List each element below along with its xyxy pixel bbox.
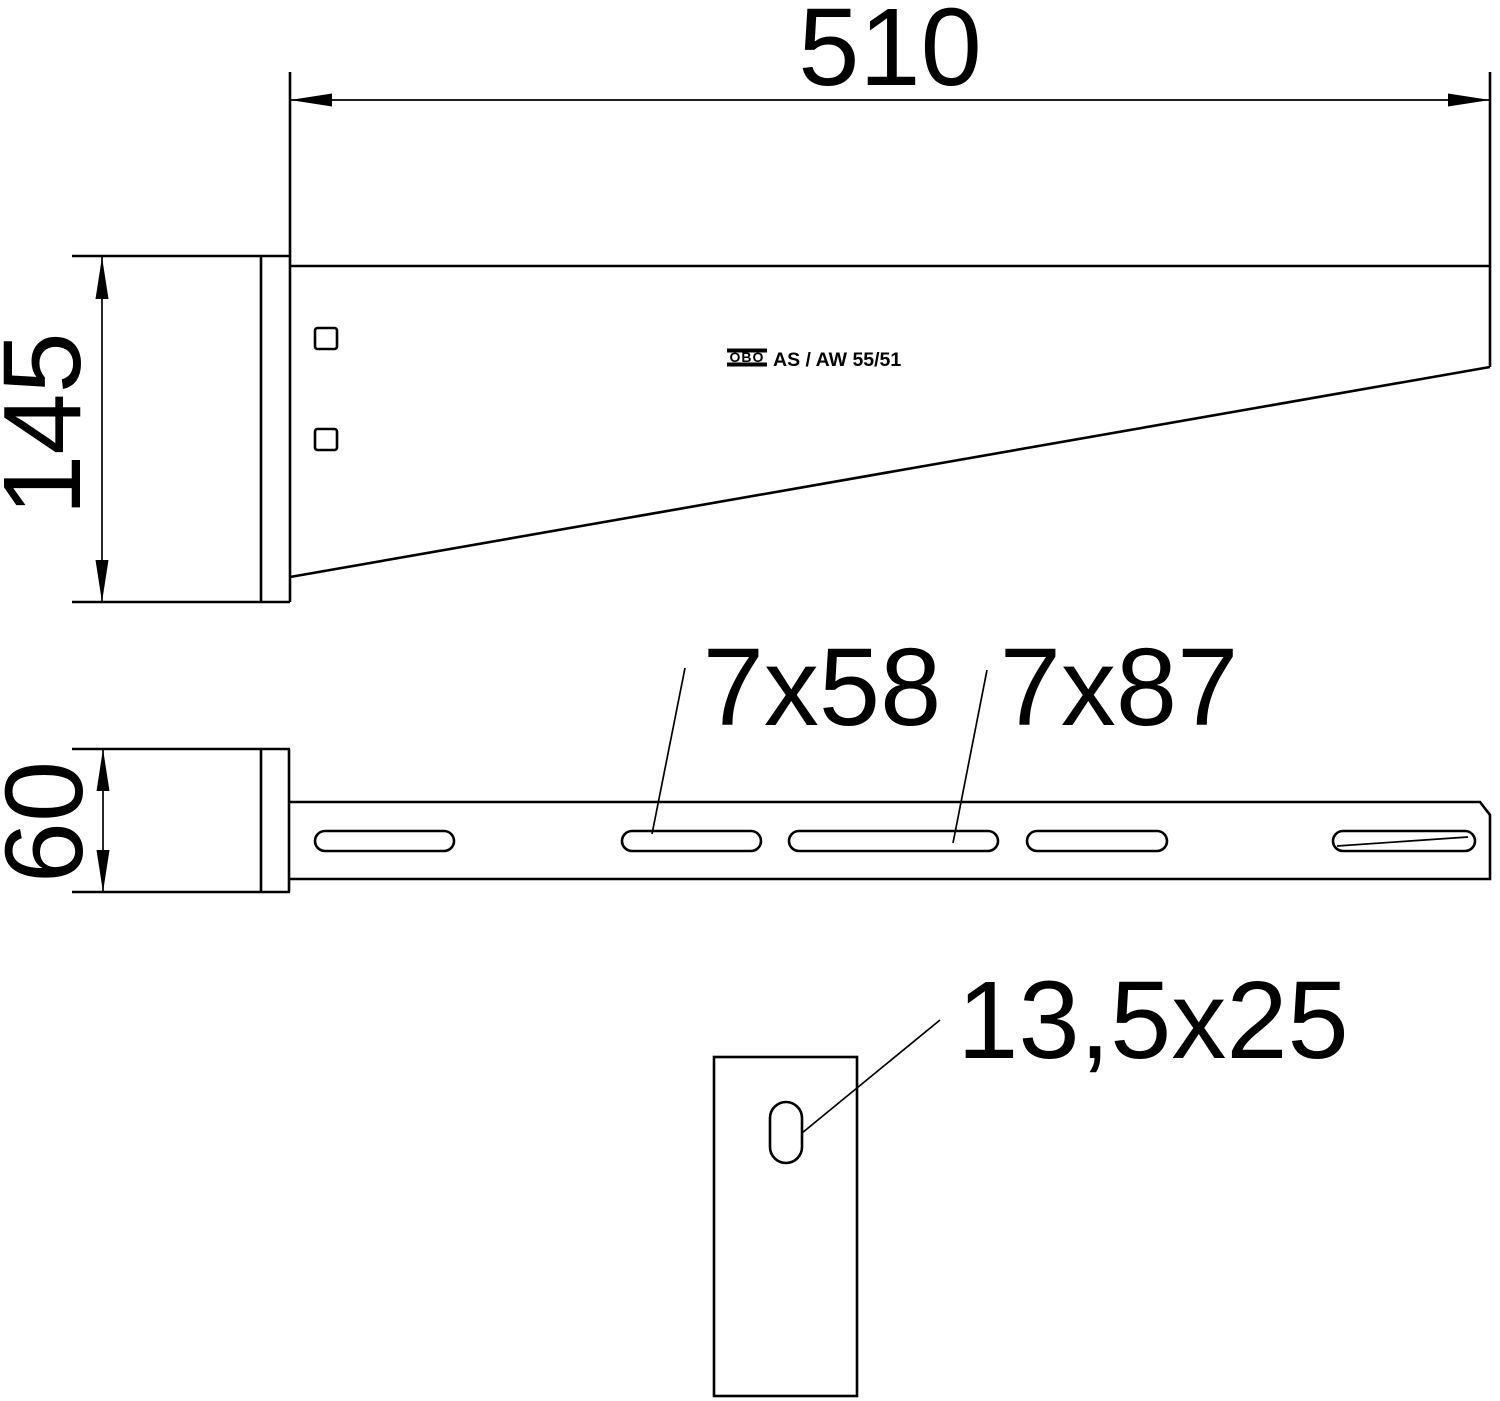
slot-1 — [315, 831, 454, 851]
plate-width-dimension-label: 60 — [0, 761, 106, 883]
end-plate-slot-label: 13,5x25 — [957, 959, 1348, 1082]
plan-arm-outline — [289, 802, 1490, 879]
slot-4 — [1027, 831, 1167, 851]
slot-3-7x87 — [789, 831, 998, 851]
square-hole-upper — [315, 328, 337, 349]
branding-stamp: OBO AS / AW 55/51 — [727, 349, 901, 372]
end-plate-outline — [714, 1057, 857, 1396]
end-plate-slot-13-5x25 — [770, 1102, 802, 1163]
technical-drawing-wall-bracket: 510 145 OBO AS / AW 55/51 60 — [0, 0, 1500, 1401]
long-slot-leader-line — [953, 670, 987, 843]
square-hole-lower — [315, 429, 337, 450]
height-dimension-label: 145 — [0, 332, 104, 516]
height-dimension-arrow-bottom — [96, 560, 109, 602]
slot-5-taper-projection-line — [1337, 837, 1468, 846]
end-plate-view: 13,5x25 — [714, 959, 1349, 1396]
slot-2-7x58 — [622, 831, 761, 851]
short-slot-label: 7x58 — [703, 626, 942, 749]
width-dimension-arrow-right — [1448, 94, 1490, 107]
width-dimension-arrow-left — [290, 94, 332, 107]
arm-bottom-taper-edge — [290, 367, 1490, 577]
width-dimension-label: 510 — [798, 0, 982, 109]
long-slot-label: 7x87 — [1000, 626, 1239, 749]
short-slot-leader-line — [652, 668, 685, 834]
side-elevation-view: 510 145 OBO AS / AW 55/51 — [0, 0, 1490, 602]
height-dimension-arrow-top — [96, 257, 109, 299]
obo-logo-icon: OBO — [730, 349, 765, 365]
model-designation-label: AS / AW 55/51 — [773, 349, 901, 371]
end-plate-slot-leader-line — [802, 1020, 940, 1133]
plan-view: 60 7x58 7x87 — [0, 626, 1490, 892]
